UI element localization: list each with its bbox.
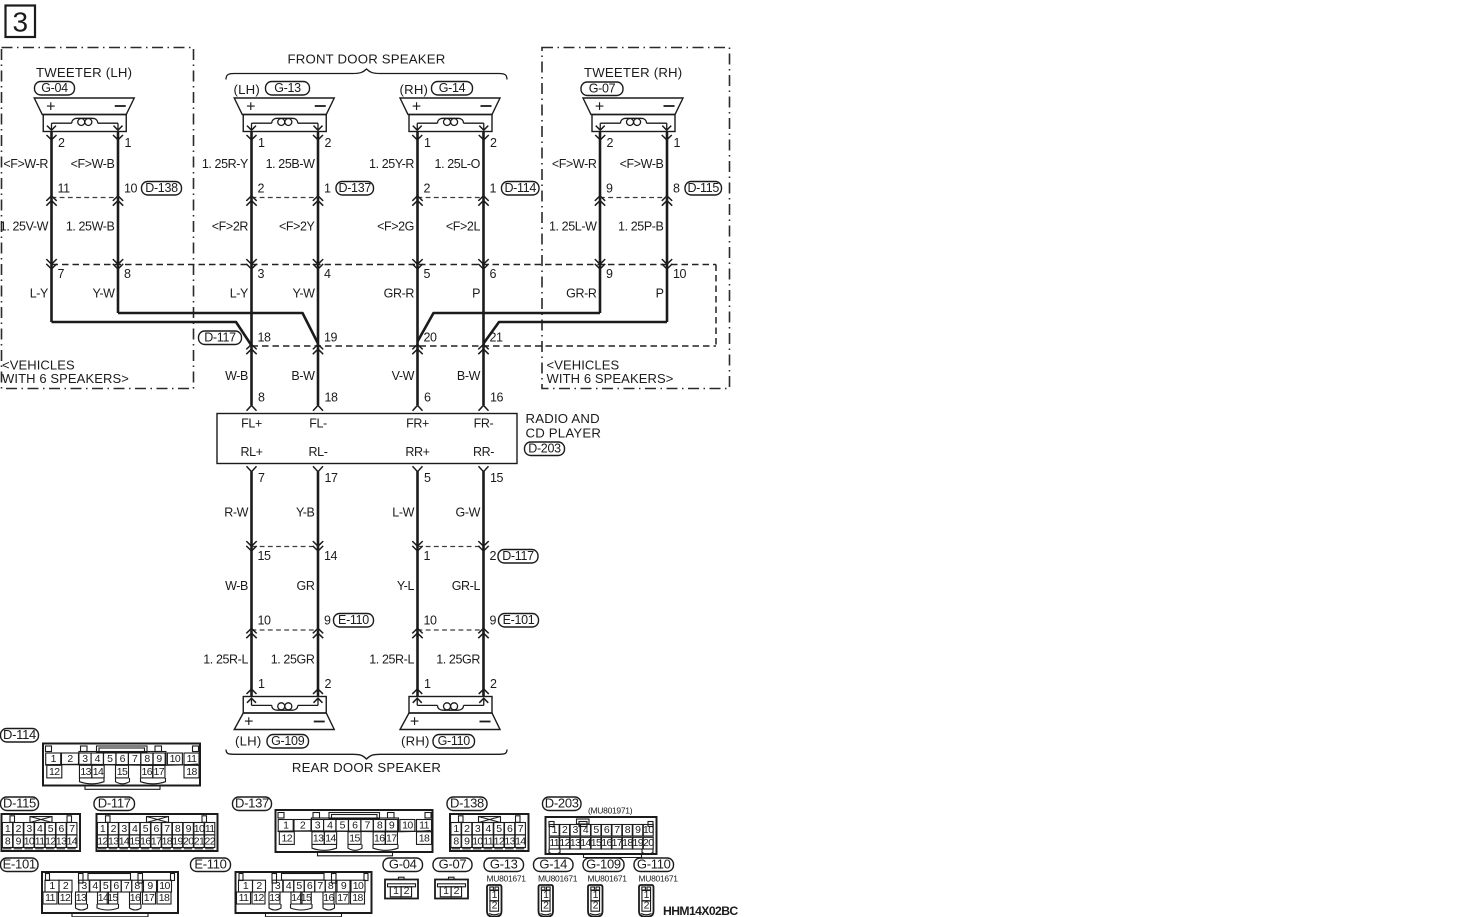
svg-text:1. 25W-B: 1. 25W-B [66,220,115,234]
svg-text:10: 10 [124,182,138,196]
svg-text:1. 25B-W: 1. 25B-W [266,157,316,171]
svg-text:18: 18 [159,892,170,904]
svg-text:11: 11 [35,836,45,848]
svg-text:G-109: G-109 [271,734,305,748]
svg-text:9: 9 [464,836,470,848]
svg-text:1: 1 [393,885,399,897]
svg-text:17: 17 [154,766,165,778]
svg-text:1: 1 [453,823,459,835]
svg-text:2: 2 [300,819,306,831]
svg-text:+: + [412,99,421,116]
svg-text:9: 9 [156,753,162,765]
svg-text:1: 1 [674,136,681,150]
svg-text:8: 8 [134,880,140,892]
svg-text:G-13: G-13 [274,81,301,95]
svg-text:REAR DOOR SPEAKER: REAR DOOR SPEAKER [292,760,441,775]
svg-text:8: 8 [144,753,150,765]
svg-text:<F>W-B: <F>W-B [71,157,115,171]
svg-text:1: 1 [424,136,431,150]
svg-text:11: 11 [419,819,429,831]
svg-text:G-110: G-110 [438,734,471,748]
svg-text:18: 18 [325,391,339,405]
svg-text:19: 19 [172,836,183,848]
svg-text:GR-R: GR-R [384,287,415,301]
svg-text:6: 6 [307,880,313,892]
svg-text:1. 25P-B: 1. 25P-B [618,220,664,234]
svg-text:12: 12 [97,836,108,848]
svg-text:4: 4 [486,823,492,835]
svg-text:G-07: G-07 [589,81,616,95]
svg-text:MU801671: MU801671 [487,874,527,884]
svg-text:3: 3 [475,823,481,835]
svg-text:14: 14 [93,766,104,778]
svg-text:12: 12 [494,836,505,848]
svg-text:16: 16 [142,766,153,778]
svg-text:4: 4 [327,819,333,831]
svg-text:14: 14 [515,836,526,848]
svg-text:10: 10 [170,753,181,765]
svg-text:4: 4 [286,880,292,892]
svg-text:MU801671: MU801671 [538,874,578,884]
svg-text:WITH 6 SPEAKERS>: WITH 6 SPEAKERS> [547,371,674,386]
svg-text:6: 6 [507,823,513,835]
svg-text:15: 15 [258,549,272,563]
svg-text:1: 1 [443,885,449,897]
svg-text:Y-L: Y-L [397,579,415,593]
svg-text:6: 6 [352,819,358,831]
svg-text:3: 3 [81,880,87,892]
svg-text:6: 6 [490,267,497,281]
svg-text:10: 10 [673,267,687,281]
svg-text:13: 13 [504,836,515,848]
svg-text:D-203: D-203 [528,441,561,455]
svg-text:1: 1 [283,819,289,831]
svg-text:2: 2 [16,823,22,835]
svg-text:7: 7 [614,824,620,836]
svg-text:16: 16 [490,391,504,405]
svg-text:14: 14 [119,836,130,848]
svg-text:R-W: R-W [224,506,248,520]
svg-text:10: 10 [194,823,205,835]
svg-text:11: 11 [45,892,55,904]
svg-text:1: 1 [49,880,55,892]
svg-text:20: 20 [643,837,654,849]
svg-text:D-115: D-115 [687,181,719,195]
svg-text:1: 1 [324,182,331,196]
svg-text:18: 18 [258,331,272,345]
svg-text:13: 13 [269,892,280,904]
svg-text:20: 20 [183,836,194,848]
svg-text:10: 10 [258,614,272,628]
svg-text:8: 8 [258,391,265,405]
svg-text:10: 10 [643,824,654,836]
svg-text:6: 6 [424,391,431,405]
svg-text:1: 1 [424,549,431,563]
svg-text:11: 11 [205,823,215,835]
svg-text:D-114: D-114 [3,727,36,742]
svg-text:10: 10 [472,836,483,848]
svg-text:4: 4 [324,267,331,281]
svg-text:6: 6 [120,753,126,765]
svg-text:RL+: RL+ [240,445,262,459]
svg-text:2: 2 [424,182,431,196]
svg-text:12: 12 [49,766,60,778]
svg-text:1. 25R-Y: 1. 25R-Y [202,157,249,171]
svg-text:G-07: G-07 [439,856,467,871]
svg-text:1: 1 [51,753,57,765]
svg-text:11: 11 [239,892,249,904]
svg-text:P: P [656,287,664,301]
svg-text:9: 9 [16,836,22,848]
svg-text:G-110: G-110 [637,856,671,871]
svg-text:1: 1 [258,677,265,691]
svg-text:<F>W-R: <F>W-R [552,157,597,171]
svg-text:13: 13 [313,833,324,845]
svg-text:8: 8 [377,819,383,831]
svg-text:15: 15 [490,471,504,485]
svg-text:G-14: G-14 [539,856,567,871]
svg-text:E-101: E-101 [3,856,36,871]
svg-text:D-117: D-117 [98,795,131,810]
svg-text:4: 4 [95,753,101,765]
svg-text:Y-B: Y-B [296,506,315,520]
svg-text:5: 5 [496,823,502,835]
svg-text:17: 17 [386,833,397,845]
svg-text:8: 8 [673,182,680,196]
svg-text:4: 4 [37,823,43,835]
svg-text:G-W: G-W [456,506,481,520]
svg-text:20: 20 [424,331,438,345]
svg-text:16: 16 [323,892,334,904]
svg-text:RL-: RL- [309,445,328,459]
svg-text:2: 2 [325,136,332,150]
svg-text:6: 6 [58,823,64,835]
svg-text:2: 2 [454,885,460,897]
svg-text:2: 2 [490,549,497,563]
svg-text:8: 8 [5,836,11,848]
svg-text:1: 1 [5,823,11,835]
svg-text:6: 6 [153,823,159,835]
svg-text:D-138: D-138 [145,181,178,195]
svg-text:18: 18 [186,766,197,778]
svg-text:MU801671: MU801671 [639,874,679,884]
svg-text:2: 2 [490,677,497,691]
svg-text:B-W: B-W [291,369,315,383]
svg-text:9: 9 [147,880,153,892]
svg-text:2: 2 [490,136,497,150]
svg-text:9: 9 [389,819,395,831]
svg-text:(LH): (LH) [234,82,260,97]
svg-text:TWEETER (RH): TWEETER (RH) [584,65,682,80]
svg-text:11: 11 [58,182,71,196]
svg-text:9: 9 [606,182,613,196]
svg-text:E-110: E-110 [338,613,369,627]
svg-text:<F>2L: <F>2L [446,220,481,234]
svg-text:17: 17 [337,892,348,904]
svg-text:2: 2 [258,182,265,196]
svg-text:15: 15 [349,833,360,845]
svg-text:5: 5 [48,823,54,835]
svg-text:7: 7 [364,819,370,831]
svg-text:D-117: D-117 [204,330,236,344]
svg-text:+: + [246,99,255,116]
svg-text:18: 18 [419,833,430,845]
svg-text:10: 10 [424,614,438,628]
svg-text:7: 7 [124,880,130,892]
svg-text:5: 5 [340,819,346,831]
svg-text:2: 2 [607,136,614,150]
svg-text:4: 4 [132,823,138,835]
svg-text:3: 3 [258,267,265,281]
svg-text:3: 3 [26,823,32,835]
svg-text:V-W: V-W [392,369,415,383]
svg-text:18: 18 [352,892,363,904]
svg-text:4: 4 [92,880,98,892]
svg-text:G-04: G-04 [41,81,68,95]
svg-text:D-114: D-114 [504,181,536,195]
svg-text:14: 14 [324,549,338,563]
svg-text:<F>2Y: <F>2Y [279,220,316,234]
svg-text:D-117: D-117 [502,549,534,563]
svg-text:17: 17 [151,836,162,848]
svg-text:9: 9 [341,880,347,892]
svg-text:8: 8 [328,880,334,892]
svg-text:HHM14X02BC: HHM14X02BC [663,904,738,917]
svg-text:1. 25GR: 1. 25GR [271,653,315,667]
svg-text:2: 2 [67,753,73,765]
svg-text:11: 11 [549,837,559,849]
svg-text:D-137: D-137 [235,795,269,810]
svg-text:19: 19 [324,331,338,345]
svg-text:D-137: D-137 [338,181,371,195]
svg-text:+: + [46,99,55,116]
svg-text:2: 2 [543,899,549,911]
svg-text:1: 1 [100,823,106,835]
svg-text:2: 2 [562,824,568,836]
svg-text:FRONT DOOR SPEAKER: FRONT DOOR SPEAKER [288,52,446,67]
svg-text:11: 11 [187,753,197,765]
svg-text:2: 2 [593,899,599,911]
svg-text:2: 2 [58,136,65,150]
svg-text:(RH): (RH) [401,734,430,749]
svg-text:3: 3 [572,824,578,836]
svg-text:14: 14 [67,836,78,848]
svg-text:RR+: RR+ [405,445,429,459]
svg-text:L-Y: L-Y [230,287,249,301]
svg-text:2: 2 [111,823,117,835]
svg-text:1: 1 [125,136,132,150]
svg-text:17: 17 [325,471,339,485]
svg-text:D-138: D-138 [450,795,484,810]
svg-text:13: 13 [76,892,87,904]
svg-text:D-115: D-115 [3,795,36,810]
svg-text:17: 17 [144,892,155,904]
svg-text:<F>W-B: <F>W-B [620,157,664,171]
svg-text:GR-L: GR-L [452,579,481,593]
svg-text:2: 2 [464,823,470,835]
svg-text:E-110: E-110 [194,856,226,871]
svg-text:12: 12 [60,892,71,904]
svg-text:L-Y: L-Y [30,287,49,301]
svg-text:5: 5 [424,267,431,281]
svg-text:7: 7 [164,823,170,835]
svg-text:10: 10 [353,880,364,892]
svg-text:2: 2 [325,677,332,691]
svg-text:RADIO AND: RADIO AND [526,411,600,426]
svg-text:Y-W: Y-W [93,287,116,301]
svg-text:+: + [595,99,604,116]
svg-text:9: 9 [635,824,641,836]
svg-text:8: 8 [625,824,631,836]
svg-text:16: 16 [130,892,141,904]
svg-text:2: 2 [256,880,262,892]
svg-text:<F>2R: <F>2R [212,220,249,234]
svg-text:3: 3 [13,7,29,38]
svg-text:1. 25R-L: 1. 25R-L [369,653,414,667]
svg-text:G-14: G-14 [439,81,466,95]
svg-text:16: 16 [374,833,385,845]
svg-text:2: 2 [644,899,650,911]
svg-text:<F>W-R: <F>W-R [3,157,48,171]
svg-text:5: 5 [593,824,599,836]
svg-text:10: 10 [24,836,35,848]
svg-text:3: 3 [315,819,321,831]
svg-text:G-04: G-04 [389,856,417,871]
svg-text:1: 1 [243,880,249,892]
svg-text:MU801671: MU801671 [588,874,628,884]
svg-text:1. 25GR: 1. 25GR [436,653,480,667]
svg-text:13: 13 [56,836,67,848]
svg-text:1. 25L-W: 1. 25L-W [549,220,597,234]
svg-text:5: 5 [296,880,302,892]
svg-text:2: 2 [492,899,498,911]
svg-text:+: + [410,714,419,731]
svg-text:E-101: E-101 [503,613,535,627]
svg-text:1. 25R-L: 1. 25R-L [203,653,248,667]
svg-text:12: 12 [253,892,264,904]
svg-text:12: 12 [282,833,293,845]
svg-text:+: + [244,714,253,731]
svg-text:G-109: G-109 [586,856,621,871]
svg-text:15: 15 [107,892,118,904]
svg-text:10: 10 [402,819,413,831]
svg-text:Y-W: Y-W [293,287,316,301]
svg-text:8: 8 [453,836,459,848]
svg-text:14: 14 [325,833,336,845]
svg-text:11: 11 [483,836,493,848]
svg-text:9: 9 [186,823,192,835]
svg-text:3: 3 [82,753,88,765]
svg-text:5: 5 [107,753,113,765]
svg-text:13: 13 [108,836,119,848]
svg-text:1: 1 [552,824,558,836]
svg-text:W-B: W-B [225,579,248,593]
svg-text:15: 15 [129,836,140,848]
svg-text:9: 9 [324,614,331,628]
svg-text:5: 5 [143,823,149,835]
svg-text:(RH): (RH) [400,82,429,97]
svg-text:1. 25V-W: 1. 25V-W [0,220,49,234]
svg-text:8: 8 [175,823,181,835]
svg-text:7: 7 [69,823,75,835]
svg-text:1: 1 [424,677,431,691]
svg-text:12: 12 [45,836,56,848]
svg-text:6: 6 [604,824,610,836]
svg-text:CD PLAYER: CD PLAYER [526,426,602,441]
svg-text:2: 2 [404,885,410,897]
svg-text:(MU801971): (MU801971) [588,806,633,816]
svg-text:G-13: G-13 [490,856,518,871]
svg-text:4: 4 [583,824,589,836]
svg-text:6: 6 [113,880,119,892]
svg-text:<F>2G: <F>2G [377,220,414,234]
svg-text:W-B: W-B [225,369,248,383]
svg-text:TWEETER (LH): TWEETER (LH) [36,65,132,80]
svg-text:21: 21 [490,331,504,345]
svg-text:RR-: RR- [473,445,494,459]
svg-text:1. 25Y-R: 1. 25Y-R [369,157,414,171]
svg-text:FL-: FL- [309,417,327,431]
svg-text:FR+: FR+ [406,417,429,431]
svg-text:22: 22 [204,836,215,848]
svg-text:GR: GR [297,579,315,593]
svg-text:P: P [472,287,480,301]
svg-text:3: 3 [275,880,281,892]
svg-text:9: 9 [606,267,613,281]
svg-text:8: 8 [124,267,131,281]
svg-text:7: 7 [258,471,265,485]
svg-text:FL+: FL+ [241,417,262,431]
svg-text:7: 7 [317,880,323,892]
svg-text:1. 25L-O: 1. 25L-O [435,157,481,171]
svg-text:FR-: FR- [474,417,494,431]
svg-text:7: 7 [132,753,138,765]
svg-text:10: 10 [159,880,170,892]
svg-text:15: 15 [301,892,312,904]
svg-text:16: 16 [140,836,151,848]
svg-text:D-203: D-203 [545,795,579,810]
svg-text:1: 1 [258,136,265,150]
svg-text:2: 2 [63,880,69,892]
svg-text:L-W: L-W [392,506,414,520]
svg-text:9: 9 [490,614,497,628]
svg-text:18: 18 [162,836,173,848]
svg-text:3: 3 [121,823,127,835]
svg-text:7: 7 [58,267,65,281]
svg-text:5: 5 [424,471,431,485]
svg-text:13: 13 [80,766,91,778]
svg-text:1: 1 [490,182,497,196]
svg-text:B-W: B-W [457,369,481,383]
svg-text:15: 15 [117,766,128,778]
svg-text:(LH): (LH) [235,734,261,749]
svg-text:21: 21 [194,836,205,848]
svg-text:GR-R: GR-R [566,287,597,301]
svg-text:WITH 6 SPEAKERS>: WITH 6 SPEAKERS> [2,371,129,386]
svg-text:5: 5 [103,880,109,892]
svg-text:7: 7 [518,823,524,835]
